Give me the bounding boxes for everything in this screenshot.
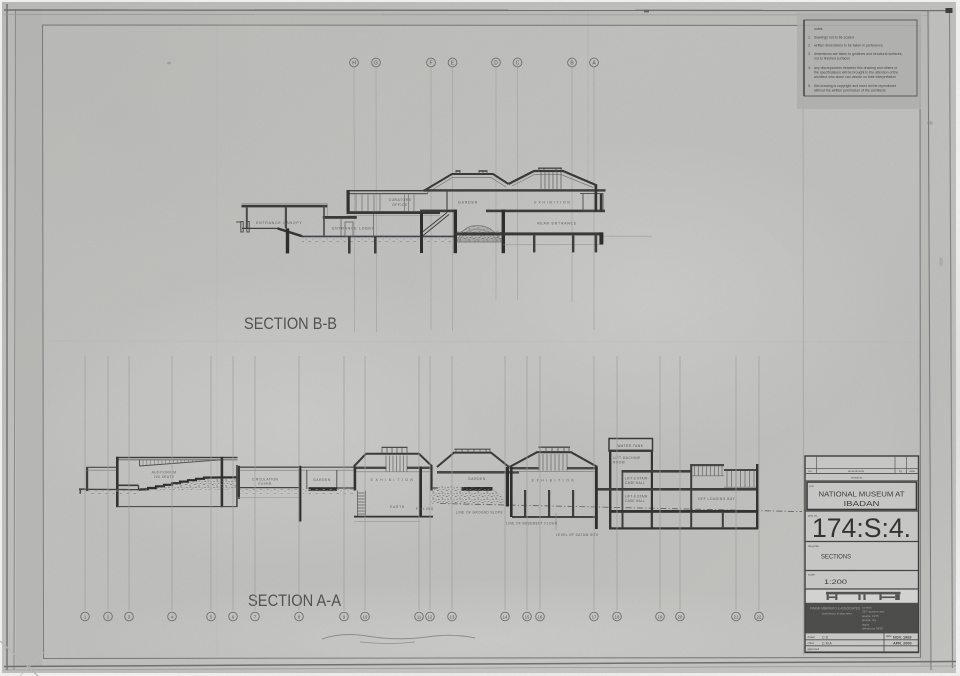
svg-text:5.: 5. (808, 84, 811, 88)
svg-text:LINE OF BASEMENT FLOOR: LINE OF BASEMENT FLOOR (506, 522, 558, 526)
svg-text:AUDITORIUM: AUDITORIUM (152, 471, 177, 475)
svg-text:revisions: revisions (851, 476, 863, 480)
svg-text:OFF LOADING BAY: OFF LOADING BAY (698, 497, 735, 501)
svg-text:CASE HALL: CASE HALL (625, 499, 645, 503)
svg-text:written dimensions to be taken: written dimensions to be taken in prefer… (814, 44, 883, 48)
svg-text:FOYER: FOYER (258, 482, 272, 486)
svg-text:D: D (494, 61, 498, 67)
svg-text:without the written permission: without the written permission of the ar… (814, 89, 886, 93)
svg-text:C D: C D (822, 635, 829, 639)
svg-text:C: C (516, 61, 520, 67)
svg-text:22: 22 (757, 614, 762, 619)
svg-text:ENTRANCE CANOPY: ENTRANCE CANOPY (256, 221, 302, 225)
svg-text:F: F (429, 61, 432, 67)
svg-text:13: 13 (450, 614, 455, 619)
svg-text:174:S:4.: 174:S:4. (812, 513, 911, 543)
svg-text:amendments: amendments (848, 469, 865, 473)
svg-text:the specifications will be bro: the specifications will be brought to th… (814, 71, 898, 75)
svg-text:rev: rev (808, 469, 812, 473)
svg-text:GARDEN: GARDEN (313, 478, 331, 482)
svg-text:OFFICE: OFFICE (392, 203, 408, 207)
svg-text:scale: scale (808, 573, 815, 577)
svg-text:REAR ENTRANCE: REAR ENTRANCE (537, 222, 577, 226)
svg-text:17: 17 (592, 614, 597, 619)
svg-text:telephone 5439: telephone 5439 (862, 627, 883, 631)
svg-text:NOV. 1969: NOV. 1969 (893, 635, 911, 639)
svg-text:14: 14 (503, 614, 508, 619)
svg-text:C M A: C M A (822, 641, 832, 645)
svg-text:any discrepancies between this: any discrepancies between this drawing a… (814, 66, 898, 70)
svg-text:GARDEN: GARDEN (468, 477, 486, 481)
svg-text:4.: 4. (808, 66, 811, 70)
svg-text:drawings not to be scaled: drawings not to be scaled (814, 36, 854, 40)
svg-text:architect who alone can decide: architect who alone can decide on their … (814, 75, 896, 79)
svg-text:1.: 1. (808, 36, 811, 40)
svg-text:3.: 3. (808, 52, 811, 56)
svg-text:200 SEATS: 200 SEATS (154, 475, 175, 479)
svg-text:EXHIBITION: EXHIBITION (371, 478, 416, 482)
svg-text:date: date (886, 634, 892, 638)
svg-text:approved: approved (808, 647, 820, 651)
svg-text:CASE HALL: CASE HALL (625, 481, 645, 485)
svg-text:15: 15 (525, 614, 530, 619)
svg-text:dimensions are taken to gridli: dimensions are taken to gridlines and st… (814, 52, 903, 56)
svg-text:LIFT & STAIR: LIFT & STAIR (625, 495, 648, 499)
svg-text:LEVEL OF DATUM SITE: LEVEL OF DATUM SITE (556, 533, 599, 537)
svg-text:APR. 2000: APR. 2000 (893, 642, 912, 646)
svg-text:20: 20 (678, 614, 683, 619)
svg-text:LINE OF GROUND SLOPE: LINE OF GROUND SLOPE (456, 511, 503, 515)
svg-text:chkd: chkd (808, 641, 814, 645)
svg-text:21: 21 (734, 614, 739, 619)
svg-text:GARDEN: GARDEN (458, 201, 478, 205)
svg-text:H: H (352, 61, 356, 67)
svg-text:not to finished surfaces: not to finished surfaces (814, 57, 850, 61)
svg-text:EXHIBITION: EXHIBITION (534, 201, 571, 205)
svg-text:SECTION A-A: SECTION A-A (248, 592, 341, 610)
svg-text:2.: 2. (808, 44, 811, 48)
svg-text:19: 19 (658, 614, 663, 619)
svg-text:EARTH: EARTH (390, 505, 405, 509)
svg-text:drawn: drawn (808, 635, 816, 639)
svg-text:16: 16 (538, 614, 543, 619)
svg-text:IBADAN: IBADAN (844, 499, 880, 508)
svg-text:notes: notes (814, 27, 823, 31)
svg-text:ROOM: ROOM (613, 461, 625, 465)
svg-text:NATIONAL MUSEUM AT: NATIONAL MUSEUM AT (819, 490, 906, 499)
svg-text:12: 12 (428, 614, 433, 619)
svg-text:18: 18 (615, 614, 620, 619)
svg-text:this drawing is copyright and: this drawing is copyright and must not b… (814, 84, 896, 88)
svg-text:SECTIONS: SECTIONS (821, 554, 852, 561)
svg-text:10: 10 (363, 614, 368, 619)
svg-text:FRANK MBANEFO & ASSOCIATES: FRANK MBANEFO & ASSOCIATES (810, 607, 861, 611)
svg-text:date: date (910, 469, 916, 473)
svg-text:dwg title: dwg title (808, 544, 819, 548)
svg-text:job: job (809, 484, 814, 488)
svg-text:11: 11 (417, 614, 422, 619)
svg-text:G: G (374, 61, 378, 67)
svg-text:LIFT & STAIR-: LIFT & STAIR- (625, 477, 649, 481)
svg-text:EXHIBITION: EXHIBITION (532, 479, 577, 483)
svg-text:SECTION B-B: SECTION B-B (244, 315, 337, 333)
svg-text:architects & planners: architects & planners (822, 612, 852, 616)
svg-text:WATER TANK: WATER TANK (618, 444, 644, 448)
svg-text:CIRCULATION: CIRCULATION (252, 478, 279, 482)
svg-text:CURATORS: CURATORS (389, 198, 412, 202)
svg-text:1:200: 1:200 (824, 579, 847, 586)
